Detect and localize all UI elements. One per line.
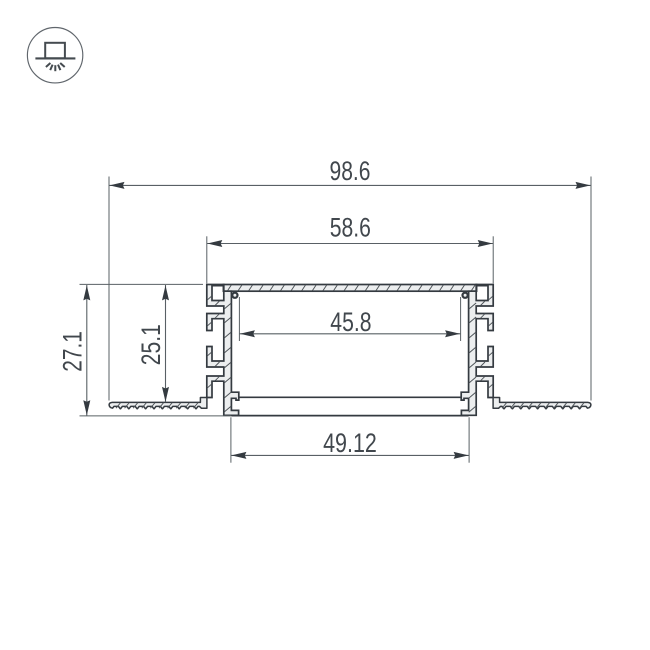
svg-text:58.6: 58.6 bbox=[330, 213, 371, 243]
svg-text:49.12: 49.12 bbox=[323, 428, 377, 458]
svg-text:25.1: 25.1 bbox=[136, 324, 166, 365]
svg-text:27.1: 27.1 bbox=[58, 331, 88, 372]
svg-text:98.6: 98.6 bbox=[330, 156, 371, 186]
svg-text:45.8: 45.8 bbox=[330, 307, 371, 337]
